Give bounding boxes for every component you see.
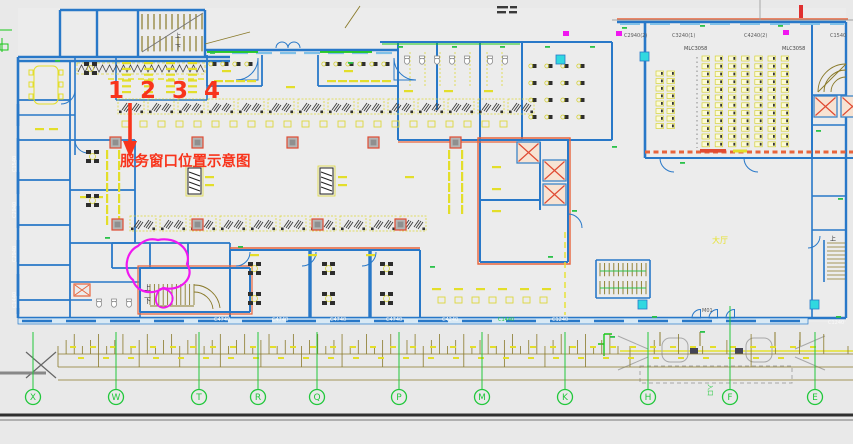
- grid-bubble-label: M: [478, 393, 486, 403]
- ydash-symbol: [144, 62, 153, 64]
- gdash-symbol: [348, 62, 353, 64]
- seat-symbol: [755, 111, 763, 116]
- seat-symbol: [656, 116, 664, 121]
- ynum-symbol: [410, 346, 416, 348]
- seat-symbol: [768, 103, 776, 108]
- seat-symbol: [755, 72, 763, 77]
- seat-symbol: [768, 79, 776, 84]
- ydash-symbol: [542, 288, 551, 290]
- ynum-symbol: [190, 346, 196, 348]
- ydash-symbol: [405, 176, 414, 178]
- ynum-symbol: [350, 346, 356, 348]
- yvdash-symbol: [461, 161, 463, 170]
- gdash-symbol: [452, 46, 457, 48]
- ynum-symbol: [610, 346, 616, 348]
- ynum-symbol: [710, 346, 716, 348]
- ynum-symbol: [150, 346, 156, 348]
- elev-symbol: [841, 96, 853, 117]
- seat-symbol: [702, 87, 710, 92]
- ynum-symbol: [230, 346, 236, 348]
- ynum-symbol: [370, 346, 376, 348]
- seat-symbol: [755, 142, 763, 147]
- seat-symbol: [781, 87, 789, 92]
- seat-symbol: [667, 116, 675, 121]
- plan-label: C1440: [12, 292, 18, 308]
- ynum-symbol: [470, 346, 476, 348]
- ynum-symbol: [753, 357, 759, 359]
- grid-bubble-label: R: [255, 393, 261, 403]
- ynum-symbol: [770, 346, 776, 348]
- gdash-symbol: [238, 246, 243, 248]
- ynum-symbol: [428, 357, 434, 359]
- yvdash-symbol: [118, 183, 120, 192]
- ydash-symbol: [520, 288, 529, 290]
- ynum-symbol: [670, 346, 676, 348]
- ynum-symbol: [278, 357, 284, 359]
- ynum-symbol: [390, 346, 396, 348]
- seat-symbol: [781, 134, 789, 139]
- grid-bubble-label: H: [645, 393, 652, 403]
- seat-symbol: [656, 101, 664, 106]
- ynum-symbol: [528, 357, 534, 359]
- column-symbol: [192, 219, 203, 230]
- ydash-symbol: [476, 288, 485, 290]
- ynum-symbol: [590, 346, 596, 348]
- plan-label: C2940: [12, 246, 18, 262]
- seat-symbol: [728, 118, 736, 123]
- ynum-symbol: [210, 346, 216, 348]
- seat-symbol: [728, 126, 736, 131]
- seat-symbol: [715, 111, 723, 116]
- seat-symbol: [755, 87, 763, 92]
- seat-symbol: [656, 86, 664, 91]
- wc-symbol: [449, 56, 454, 64]
- ynum-symbol: [503, 357, 509, 359]
- mgdoor-symbol: [563, 31, 569, 36]
- plan-label: 下: [175, 44, 181, 51]
- ynum-symbol: [603, 357, 609, 359]
- plan-label: C4240(2): [744, 33, 767, 39]
- seat-symbol: [768, 95, 776, 100]
- yvdash-symbol: [106, 183, 108, 192]
- gdash-symbol: [590, 46, 595, 48]
- ynum-symbol: [803, 357, 809, 359]
- seat-symbol: [715, 134, 723, 139]
- yvdash-symbol: [448, 205, 450, 214]
- ynum-symbol: [728, 357, 734, 359]
- ynum-symbol: [130, 346, 136, 348]
- yvdash-symbol: [118, 172, 120, 181]
- plan-label: 上: [830, 235, 836, 243]
- ynum-symbol: [310, 346, 316, 348]
- column-symbol: [192, 137, 203, 148]
- seat-symbol: [742, 103, 750, 108]
- yvdash-symbol: [461, 205, 463, 214]
- gdash-symbol: [610, 336, 615, 338]
- seat-symbol: [728, 111, 736, 116]
- seat-symbol: [742, 134, 750, 139]
- ynum-symbol: [403, 357, 409, 359]
- seat-symbol: [781, 79, 789, 84]
- cyanbox-symbol: [556, 55, 565, 64]
- ynum-symbol: [628, 357, 634, 359]
- cyanbox-symbol: [640, 52, 649, 61]
- ynum-symbol: [550, 346, 556, 348]
- seat-symbol: [667, 79, 675, 84]
- seat-symbol: [728, 79, 736, 84]
- seat-symbol: [728, 134, 736, 139]
- ydash-symbol: [404, 90, 413, 92]
- seat-symbol: [768, 134, 776, 139]
- seat-symbol: [667, 124, 675, 129]
- ydash-symbol: [484, 90, 493, 92]
- ydash-symbol: [371, 80, 380, 82]
- seat-symbol: [715, 103, 723, 108]
- gdash-symbol: [612, 146, 617, 148]
- ynum-symbol: [90, 346, 96, 348]
- plan-label: 上: [175, 32, 181, 40]
- seat-symbol: [755, 95, 763, 100]
- seat-symbol: [781, 103, 789, 108]
- column-symbol: [110, 137, 121, 148]
- ydash-symbol: [454, 288, 463, 290]
- cyanbox-symbol: [810, 300, 819, 309]
- ynum-symbol: [103, 357, 109, 359]
- ynum-symbol: [570, 346, 576, 348]
- gdash-symbol: [548, 256, 553, 258]
- cyanbox-symbol: [638, 300, 647, 309]
- yvdash-symbol: [106, 172, 108, 181]
- ynum-symbol: [178, 357, 184, 359]
- ynum-symbol: [78, 357, 84, 359]
- yvdash-symbol: [106, 194, 108, 203]
- plan-label: C1440: [498, 317, 514, 323]
- ynum-symbol: [328, 357, 334, 359]
- seat-symbol: [742, 118, 750, 123]
- seat-symbol: [702, 79, 710, 84]
- mgdoor-symbol: [616, 31, 622, 36]
- ynum-symbol: [270, 346, 276, 348]
- yvdash-symbol: [448, 194, 450, 203]
- wc-symbol: [111, 299, 116, 307]
- seat-symbol: [702, 142, 710, 147]
- seat-symbol: [781, 142, 789, 147]
- seat-symbol: [728, 72, 736, 77]
- seat-symbol: [781, 56, 789, 61]
- ydash-symbol: [444, 90, 453, 92]
- plan-label: C4740: [214, 317, 230, 323]
- plan-label: 大厅: [712, 235, 728, 245]
- gdash-symbol: [572, 210, 577, 212]
- seat-symbol: [702, 126, 710, 131]
- seat-symbol: [781, 64, 789, 69]
- seat-symbol: [742, 64, 750, 69]
- yvdash-symbol: [118, 205, 120, 214]
- ydash-symbol: [492, 188, 501, 190]
- yvdash-symbol: [106, 205, 108, 214]
- seat-symbol: [715, 87, 723, 92]
- plan-label: C1240: [828, 320, 844, 326]
- wc-symbol: [96, 299, 101, 307]
- plan-label: 入口: [706, 384, 713, 396]
- plan-label: MLC3058: [782, 46, 805, 52]
- ynum-symbol: [203, 357, 209, 359]
- info-table: [186, 166, 203, 196]
- yvdash-symbol: [448, 150, 450, 159]
- seat-symbol: [702, 95, 710, 100]
- gdash-symbol: [700, 331, 705, 333]
- ydash-symbol: [498, 288, 507, 290]
- seat-symbol: [656, 71, 664, 76]
- plan-label: C3240(1): [672, 33, 695, 39]
- ydash-symbol: [492, 166, 501, 168]
- seat-symbol: [728, 103, 736, 108]
- ydash-symbol: [432, 288, 441, 290]
- wc-symbol: [464, 56, 469, 64]
- ynum-symbol: [70, 346, 76, 348]
- ydash-symbol: [327, 80, 336, 82]
- cad-viewport: C4740C4740C4740C4740C4240C1440C1240C1240…: [0, 0, 853, 444]
- gdash-symbol: [778, 25, 783, 27]
- gdash-symbol: [838, 198, 843, 200]
- grid-bubble-label: T: [195, 393, 202, 403]
- seat-symbol: [742, 87, 750, 92]
- seat-symbol: [656, 79, 664, 84]
- ynum-symbol: [630, 346, 636, 348]
- ynum-symbol: [690, 346, 696, 348]
- yvdash-symbol: [461, 194, 463, 203]
- gdash-symbol: [500, 46, 505, 48]
- grid-bubble-label: F: [727, 393, 732, 403]
- seat-symbol: [715, 126, 723, 131]
- ynum-symbol: [453, 357, 459, 359]
- seat-symbol: [656, 94, 664, 99]
- seat-symbol: [768, 72, 776, 77]
- ydash-symbol: [144, 74, 153, 76]
- seat-symbol: [728, 64, 736, 69]
- ydash-symbol: [144, 68, 153, 70]
- wc-symbol: [404, 56, 409, 64]
- seat-symbol: [768, 56, 776, 61]
- ynum-symbol: [450, 346, 456, 348]
- ynum-symbol: [530, 346, 536, 348]
- yvdash-symbol: [118, 194, 120, 203]
- wc-symbol: [419, 56, 424, 64]
- plan-label: C2940: [12, 202, 18, 218]
- gdash-symbol: [55, 60, 60, 62]
- seat-symbol: [742, 126, 750, 131]
- ydash-symbol: [366, 254, 375, 256]
- seat-symbol: [728, 87, 736, 92]
- seat-symbol: [715, 72, 723, 77]
- ydash-symbol: [188, 74, 197, 76]
- ydash-symbol: [344, 70, 353, 72]
- ydash-symbol: [338, 176, 347, 178]
- gdash-symbol: [210, 52, 215, 54]
- info-table: [318, 166, 335, 196]
- ydash-symbol: [247, 80, 256, 82]
- ynum-symbol: [290, 346, 296, 348]
- ydash-symbol: [222, 70, 231, 72]
- grid-bubble-label: W: [112, 393, 121, 403]
- ydash-symbol: [49, 128, 58, 130]
- ynum-symbol: [110, 346, 116, 348]
- mgdoor-symbol: [783, 30, 789, 35]
- column-symbol: [287, 137, 298, 148]
- ynum-symbol: [703, 357, 709, 359]
- annotation-numbers: 1 2 3 4: [108, 78, 224, 104]
- seat-symbol: [702, 64, 710, 69]
- ydash-symbol: [188, 68, 197, 70]
- seat-symbol: [768, 111, 776, 116]
- plan-label: C4740: [386, 317, 402, 323]
- seat-symbol: [768, 118, 776, 123]
- seat-symbol: [667, 71, 675, 76]
- gdash-symbol: [398, 46, 403, 48]
- column-symbol: [395, 219, 406, 230]
- seat-symbol: [715, 64, 723, 69]
- column-symbol: [312, 219, 323, 230]
- seat-symbol: [667, 109, 675, 114]
- plan-label: M01: [702, 308, 713, 314]
- gdash-symbol: [816, 130, 821, 132]
- plan-label: C2940(2): [624, 33, 647, 39]
- ynum-symbol: [170, 346, 176, 348]
- gdash-symbol: [105, 237, 110, 239]
- ynum-symbol: [730, 346, 736, 348]
- ydash-symbol: [166, 62, 175, 64]
- seat-symbol: [728, 56, 736, 61]
- column-symbol: [112, 219, 123, 230]
- gdash-symbol: [545, 46, 550, 48]
- seat-symbol: [768, 126, 776, 131]
- gdash-symbol: [430, 266, 435, 268]
- ynum-symbol: [303, 357, 309, 359]
- seat-symbol: [755, 79, 763, 84]
- seat-symbol: [755, 134, 763, 139]
- seat-symbol: [755, 56, 763, 61]
- seat-symbol: [768, 64, 776, 69]
- seat-symbol: [742, 79, 750, 84]
- plan-label: C4740: [330, 317, 346, 323]
- ynum-symbol: [378, 357, 384, 359]
- seat-symbol: [768, 87, 776, 92]
- seat-symbol: [667, 101, 675, 106]
- seat-symbol: [715, 79, 723, 84]
- ynum-symbol: [678, 357, 684, 359]
- wc-symbol: [434, 56, 439, 64]
- seat-symbol: [755, 103, 763, 108]
- elev-symbol: [814, 96, 837, 117]
- grid-bubble-label: Q: [313, 393, 320, 403]
- seat-symbol: [667, 86, 675, 91]
- gdash-symbol: [652, 316, 657, 318]
- yvdash-symbol: [106, 161, 108, 170]
- gdash-symbol: [680, 162, 685, 164]
- annotation-caption: 服务窗口位置示意图: [120, 152, 251, 170]
- ynum-symbol: [228, 357, 234, 359]
- ynum-symbol: [750, 346, 756, 348]
- plan-label: C1540: [830, 33, 846, 39]
- seat-symbol: [715, 142, 723, 147]
- seat-symbol: [702, 118, 710, 123]
- grid-bubble-label: X: [30, 393, 36, 403]
- seat-symbol: [781, 118, 789, 123]
- ydash-symbol: [360, 80, 369, 82]
- gdash-symbol: [622, 27, 627, 29]
- seat-symbol: [702, 72, 710, 77]
- ydash-symbol: [122, 74, 131, 76]
- seat-symbol: [656, 124, 664, 129]
- ydash-symbol: [166, 68, 175, 70]
- seat-symbol: [728, 95, 736, 100]
- plan-label: C1540: [12, 156, 18, 172]
- seat-symbol: [755, 64, 763, 69]
- ynum-symbol: [650, 346, 656, 348]
- plan-label: 下: [144, 297, 151, 305]
- wc-symbol: [502, 56, 507, 64]
- yvdash-symbol: [461, 183, 463, 192]
- seat-symbol: [715, 56, 723, 61]
- seat-symbol: [667, 94, 675, 99]
- wc-symbol: [126, 299, 131, 307]
- wc-symbol: [487, 56, 492, 64]
- ydash-symbol: [122, 68, 131, 70]
- ydash-symbol: [122, 62, 131, 64]
- gdash-symbol: [836, 316, 841, 318]
- seat-symbol: [728, 142, 736, 147]
- seat-symbol: [715, 118, 723, 123]
- plan-label: C4240: [442, 317, 458, 323]
- ynum-symbol: [478, 357, 484, 359]
- seat-symbol: [781, 126, 789, 131]
- grid-bubble-label: E: [812, 393, 818, 403]
- seat-symbol: [781, 95, 789, 100]
- elev-symbol: [543, 160, 566, 181]
- ydash-symbol: [225, 80, 234, 82]
- yvdash-symbol: [106, 216, 108, 225]
- seat-symbol: [702, 56, 710, 61]
- seat-symbol: [755, 126, 763, 131]
- ynum-symbol: [128, 357, 134, 359]
- ynum-symbol: [510, 346, 516, 348]
- ynum-symbol: [778, 357, 784, 359]
- ydash-symbol: [338, 80, 347, 82]
- ynum-symbol: [353, 357, 359, 359]
- ynum-symbol: [578, 357, 584, 359]
- column-symbol: [450, 137, 461, 148]
- plan-label: C4740: [272, 317, 288, 323]
- seat-symbol: [742, 95, 750, 100]
- ydash-symbol: [286, 86, 295, 88]
- ydash-symbol: [205, 176, 214, 178]
- elev-symbol: [517, 142, 540, 163]
- gdash-symbol: [700, 25, 705, 27]
- ydash-symbol: [338, 184, 347, 186]
- seat-symbol: [781, 111, 789, 116]
- ydash-symbol: [250, 254, 259, 256]
- grid-bubble-label: P: [396, 393, 402, 403]
- ynum-symbol: [430, 346, 436, 348]
- ynum-symbol: [790, 346, 796, 348]
- ydash-symbol: [188, 62, 197, 64]
- seat-symbol: [742, 72, 750, 77]
- yvdash-symbol: [461, 150, 463, 159]
- seat-symbol: [781, 72, 789, 77]
- ynum-symbol: [250, 346, 256, 348]
- yvdash-symbol: [106, 150, 108, 159]
- seat-symbol: [702, 111, 710, 116]
